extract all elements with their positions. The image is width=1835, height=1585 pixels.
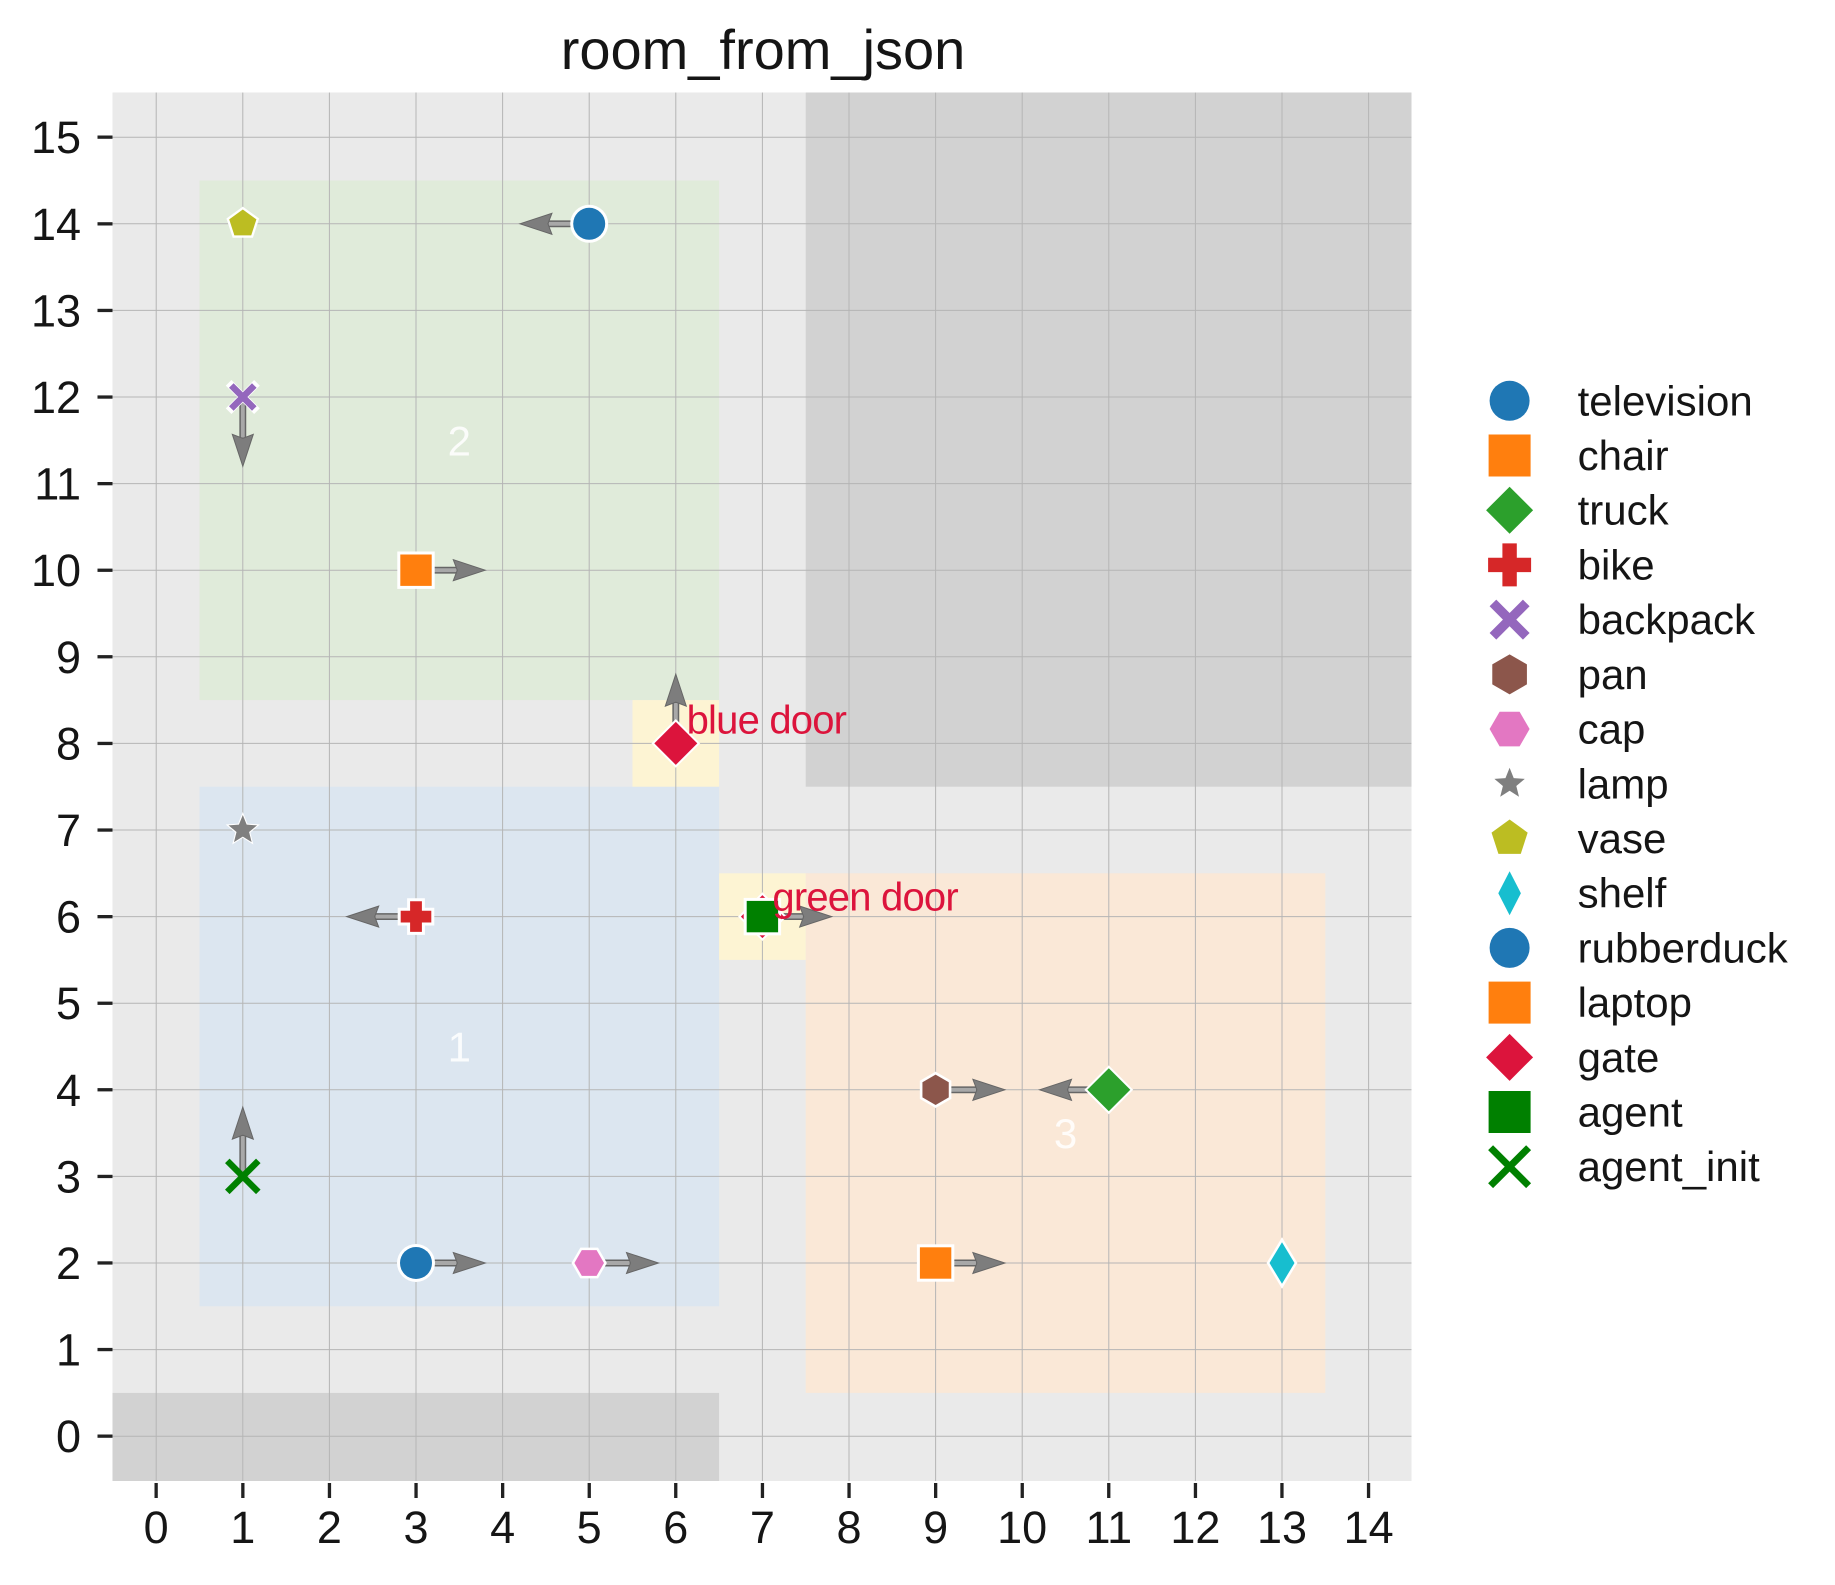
svg-text:lamp: lamp [1578, 760, 1669, 807]
svg-text:12: 12 [31, 372, 81, 423]
svg-text:green door: green door [772, 876, 958, 920]
svg-text:3: 3 [403, 1502, 428, 1553]
svg-text:pan: pan [1578, 651, 1648, 698]
svg-text:15: 15 [31, 112, 81, 163]
svg-text:0: 0 [144, 1502, 169, 1553]
svg-text:2: 2 [56, 1238, 81, 1289]
svg-text:14: 14 [1344, 1502, 1394, 1553]
svg-text:0: 0 [56, 1411, 81, 1462]
svg-text:truck: truck [1578, 487, 1670, 534]
svg-text:shelf: shelf [1578, 870, 1667, 917]
svg-text:6: 6 [663, 1502, 688, 1553]
svg-text:5: 5 [56, 978, 81, 1029]
svg-text:agent_init: agent_init [1578, 1143, 1760, 1190]
svg-text:6: 6 [56, 892, 81, 943]
svg-text:7: 7 [56, 805, 81, 856]
svg-text:2: 2 [317, 1502, 342, 1553]
svg-text:1: 1 [56, 1325, 81, 1376]
svg-text:blue door: blue door [687, 699, 847, 743]
svg-text:gate: gate [1578, 1034, 1660, 1081]
svg-text:11: 11 [1085, 1502, 1132, 1553]
svg-text:4: 4 [490, 1502, 515, 1553]
svg-text:4: 4 [56, 1065, 81, 1116]
svg-text:1: 1 [448, 1024, 471, 1071]
svg-text:laptop: laptop [1578, 979, 1692, 1026]
svg-text:10: 10 [997, 1502, 1047, 1553]
svg-text:bike: bike [1578, 541, 1655, 588]
svg-text:backpack: backpack [1578, 596, 1756, 643]
svg-text:8: 8 [56, 718, 81, 769]
svg-text:13: 13 [31, 285, 81, 336]
svg-text:9: 9 [56, 632, 81, 683]
svg-text:12: 12 [1170, 1502, 1220, 1553]
svg-text:10: 10 [31, 545, 81, 596]
svg-text:television: television [1578, 377, 1753, 424]
svg-text:agent: agent [1578, 1089, 1683, 1136]
svg-text:cap: cap [1578, 706, 1646, 753]
svg-text:vase: vase [1578, 815, 1667, 862]
svg-text:7: 7 [750, 1502, 775, 1553]
svg-text:room_from_json: room_from_json [561, 18, 966, 81]
svg-text:3: 3 [1054, 1110, 1077, 1157]
svg-text:2: 2 [448, 417, 471, 464]
svg-text:8: 8 [836, 1502, 861, 1553]
svg-text:13: 13 [1257, 1502, 1307, 1553]
svg-text:11: 11 [34, 459, 81, 510]
svg-text:rubberduck: rubberduck [1578, 924, 1789, 971]
svg-text:5: 5 [577, 1502, 602, 1553]
svg-text:9: 9 [923, 1502, 948, 1553]
svg-text:chair: chair [1578, 432, 1669, 479]
svg-text:1: 1 [230, 1502, 255, 1553]
svg-text:3: 3 [56, 1151, 81, 1202]
svg-text:14: 14 [31, 199, 81, 250]
